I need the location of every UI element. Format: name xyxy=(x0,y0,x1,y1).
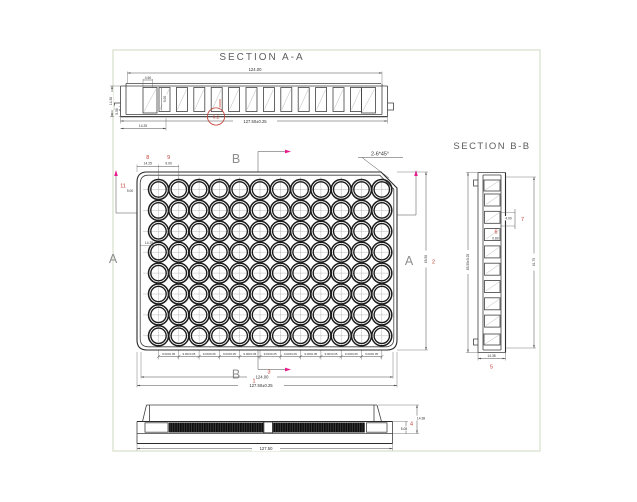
dim-well-pitch: 9.00±0.05 xyxy=(304,352,317,356)
front-profile xyxy=(137,405,393,444)
balloon-9: 9 xyxy=(167,155,170,161)
dim-well-pitch: 9.00±0.05 xyxy=(365,352,378,356)
aa-cavity-hatch xyxy=(230,90,239,110)
dim-well-pitch: 9.00±0.05 xyxy=(243,352,256,356)
section-bb-profile xyxy=(474,173,506,353)
bb-cavity-hatch xyxy=(486,265,499,274)
plan-bottom-dims: 9.00±0.059.00±0.059.00±0.059.00±0.059.00… xyxy=(137,351,397,389)
front-end-cell xyxy=(367,423,388,432)
dim-bb-height: 14.38 xyxy=(487,354,495,358)
dim-well-pitch: 9.00±0.05 xyxy=(223,352,236,356)
dim-bb-inner: 81.70 xyxy=(532,258,536,266)
dim-row-pitch: 9.00 xyxy=(127,189,134,193)
balloon-8: 8 xyxy=(146,155,149,161)
dim-aa-top-width: 124.00 xyxy=(249,67,262,72)
section-bb-title: SECTION B-B xyxy=(453,141,530,152)
section-aa-dimensions: 124.00 127.50±0.25 14.25 14.38 5.08 4. xyxy=(108,67,388,131)
section-b-label-top: B xyxy=(232,152,240,166)
front-end-cell xyxy=(145,423,168,432)
section-arrow-icon xyxy=(285,368,291,372)
dim-well-pitch: 9.00±0.05 xyxy=(203,352,216,356)
well-rib-band xyxy=(273,423,365,432)
chamfer-note-text: 2-6*45° xyxy=(371,152,389,158)
aa-cavity-hatch xyxy=(247,90,256,110)
aa-cavity-hatch xyxy=(264,90,273,110)
aa-cavity-hatch xyxy=(317,90,326,110)
aa-cavity-hatch xyxy=(177,90,186,110)
section-aa-profile xyxy=(115,84,394,117)
aa-cavity-hatch xyxy=(334,90,343,110)
dim-col-offset: 14.25 xyxy=(144,162,152,166)
dim-plan-height: 85.50 xyxy=(424,255,428,263)
balloon-1: 1 xyxy=(253,379,256,385)
dim-well-pitch: 9.00±0.05 xyxy=(162,352,175,356)
bb-cavity-hatch xyxy=(486,247,499,256)
chamfer-note: 2-6*45° xyxy=(358,152,403,179)
section-a-label-left: A xyxy=(109,252,118,266)
section-arrow-icon xyxy=(285,150,291,154)
dim-bb-gap: 0.80 xyxy=(492,237,499,241)
dim-aa-skirt: 5.08 xyxy=(115,108,119,115)
bb-cavity-hatch xyxy=(486,196,499,205)
balloon-4: 4 xyxy=(410,422,413,428)
dim-aa-well-depth: 9.00 xyxy=(163,96,167,103)
bb-cavity-hatch xyxy=(486,317,499,326)
well-pitch-chain: 9.00±0.059.00±0.059.00±0.059.00±0.059.00… xyxy=(157,351,384,360)
dim-front-width: 127.50 xyxy=(260,446,273,451)
wells-grid xyxy=(149,180,392,346)
cad-drawing: SECTION A-A 124.00 1 xyxy=(0,0,637,502)
dim-aa-height: 14.38 xyxy=(109,97,113,105)
dim-bb-rib: 4.00 xyxy=(505,217,512,221)
dim-well-pitch: 9.00±0.05 xyxy=(284,352,297,356)
dim-bb-overall: 85.50±0.25 xyxy=(466,254,470,271)
dim-well-pitch: 9.00±0.05 xyxy=(183,352,196,356)
bb-cavity-hatch xyxy=(486,299,499,308)
section-b-label-bottom: B xyxy=(232,368,240,382)
dim-well-pitch: 9.00±0.05 xyxy=(325,352,338,356)
section-a-label-right: A xyxy=(405,254,414,268)
dim-aa-end-offset: 14.25 xyxy=(139,124,147,128)
aa-cavity-hatch xyxy=(299,90,308,110)
dim-front-skirt: 5.08 xyxy=(401,427,408,431)
well-rib-band xyxy=(169,423,264,432)
dim-well-pitch: 9.00±0.05 xyxy=(345,352,358,356)
drawing-sheet: SECTION A-A 124.00 1 xyxy=(0,0,637,502)
bb-cavity-hatch xyxy=(486,282,499,291)
balloon-3: 3 xyxy=(268,370,271,376)
balloon-11: 11 xyxy=(120,184,126,190)
aa-cavity-hatch xyxy=(195,90,204,110)
front-view: 14.38 5.08 4 127.50 xyxy=(137,405,429,451)
dim-aa-rib-width: 4.50 xyxy=(145,76,152,80)
section-arrow-icon xyxy=(114,170,118,176)
balloon-flatness: 0.2 xyxy=(213,114,220,119)
balloon-6: 6 xyxy=(495,230,498,236)
section-bb-view: SECTION B-B 85.50±0.25 xyxy=(453,141,536,371)
dim-aa-overall-width: 127.50±0.25 xyxy=(243,119,267,124)
section-bb-cavities xyxy=(485,194,501,327)
aa-cavity-hatch xyxy=(282,90,291,110)
dim-front-height: 14.38 xyxy=(417,416,425,420)
balloon-2: 2 xyxy=(432,260,435,266)
front-center-notch xyxy=(264,422,273,433)
dim-col-pitch: 9.00 xyxy=(165,162,172,166)
plan-view: B B A A 2-6*45° 14.25 9.00 8 9 xyxy=(109,150,435,389)
section-arrow-icon xyxy=(414,170,418,176)
section-aa-title: SECTION A-A xyxy=(219,52,304,63)
aa-cavity-hatch xyxy=(351,90,360,110)
dim-well-pitch: 9.00±0.05 xyxy=(264,352,277,356)
bb-cavity-hatch xyxy=(486,213,499,222)
balloon-5: 5 xyxy=(490,365,493,371)
balloon-7: 7 xyxy=(521,217,524,223)
dim-row-offset: 14.25 xyxy=(145,241,153,245)
section-aa-view: SECTION A-A 124.00 1 xyxy=(108,52,394,131)
section-aa-cavities xyxy=(159,88,361,112)
